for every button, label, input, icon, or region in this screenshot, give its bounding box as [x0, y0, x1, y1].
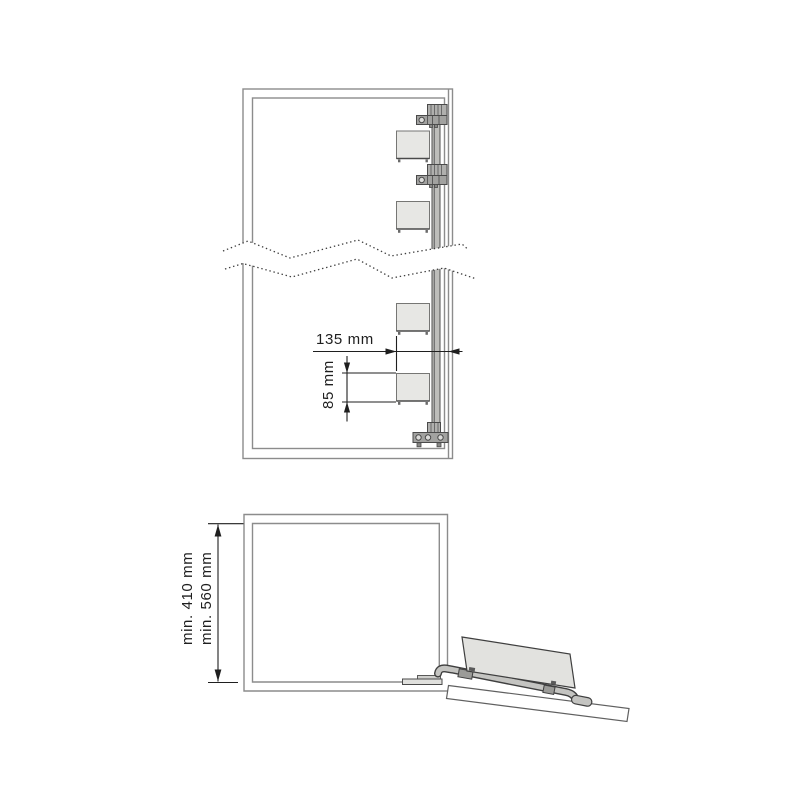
- arrow-down-icon: [215, 670, 222, 682]
- rail-foot-bracket: [413, 423, 448, 447]
- installation-diagram: 135 mm 85 mm min. 410 mm min. 560 mm: [0, 0, 800, 800]
- arrow-left-icon: [449, 348, 460, 354]
- shelf-support-1: [397, 131, 430, 162]
- dimension-85mm: [342, 356, 396, 422]
- arrow-up-icon: [215, 525, 222, 537]
- diagram-linework: [0, 0, 800, 800]
- rail-bracket-middle: [417, 165, 448, 188]
- label-min-410mm: min. 410 mm: [180, 557, 196, 645]
- shelf-support-2: [397, 202, 430, 233]
- shelf-support-3: [397, 304, 430, 335]
- pull-down-mechanism: [403, 637, 630, 722]
- lower-cabinet-inner: [253, 524, 440, 683]
- fold-down-door: [447, 686, 630, 722]
- label-min-560mm: min. 560 mm: [199, 557, 215, 645]
- arrow-down-icon: [344, 363, 350, 374]
- label-85mm: 85 mm: [321, 361, 337, 409]
- label-135mm: 135 mm: [316, 332, 374, 348]
- mount-bar: [403, 679, 443, 685]
- rail-bracket-top: [417, 105, 448, 128]
- arrow-up-icon: [344, 402, 350, 413]
- lower-cabinet-side-view: [244, 515, 448, 692]
- arrow-right-icon: [386, 348, 397, 354]
- shelf-support-4: [397, 374, 430, 405]
- tube-clamp-2: [543, 685, 555, 694]
- lower-cabinet-outer: [244, 515, 448, 692]
